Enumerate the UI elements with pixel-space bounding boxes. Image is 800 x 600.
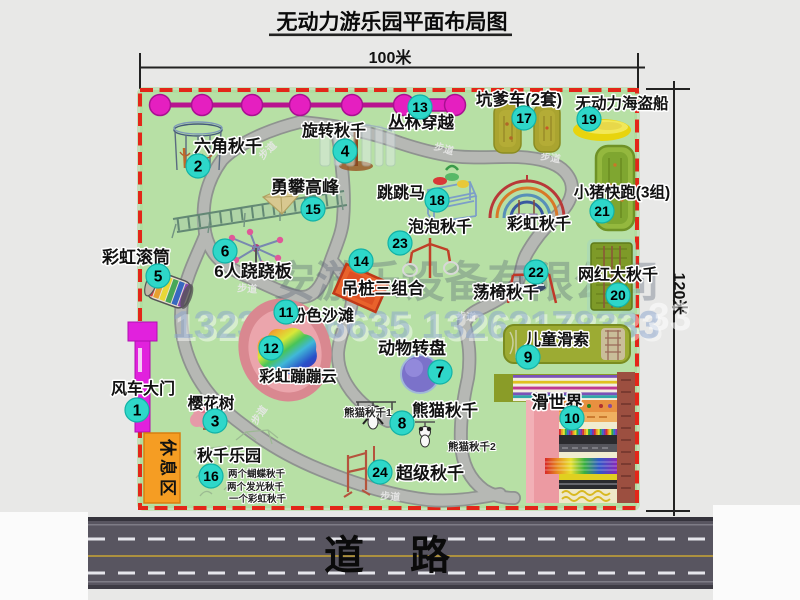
- svg-text:风车大门: 风车大门: [111, 379, 175, 398]
- svg-text:休息区: 休息区: [158, 438, 178, 499]
- svg-text:16: 16: [203, 468, 219, 484]
- svg-text:网红大秋千: 网红大秋千: [578, 265, 658, 284]
- svg-text:六角秋千: 六角秋千: [194, 136, 262, 156]
- svg-text:18: 18: [429, 192, 445, 208]
- svg-text:14: 14: [353, 253, 369, 269]
- svg-text:旋转秋千: 旋转秋千: [301, 121, 366, 140]
- svg-text:24: 24: [372, 464, 388, 480]
- svg-text:22: 22: [528, 264, 544, 280]
- svg-text:道路: 道路: [324, 534, 496, 578]
- svg-text:熊猫秋千1: 熊猫秋千1: [344, 406, 392, 419]
- svg-text:无动力游乐园平面布局图: 无动力游乐园平面布局图: [277, 10, 508, 34]
- svg-text:两个发光秋千: 两个发光秋千: [227, 481, 285, 493]
- svg-text:彩虹蹦蹦云: 彩虹蹦蹦云: [258, 367, 337, 386]
- svg-text:5: 5: [154, 269, 163, 286]
- svg-text:泡泡秋千: 泡泡秋千: [408, 217, 472, 236]
- svg-text:小猪快跑(3组): 小猪快跑(3组): [574, 183, 670, 202]
- svg-text:彩虹秋千: 彩虹秋千: [506, 214, 571, 233]
- svg-text:17: 17: [516, 110, 532, 126]
- svg-text:超级秋千: 超级秋千: [396, 463, 464, 483]
- svg-text:动物转盘: 动物转盘: [378, 338, 446, 358]
- svg-text:9: 9: [524, 350, 533, 367]
- svg-text:6人跷跷板: 6人跷跷板: [214, 261, 292, 281]
- svg-text:坑爹车(2套): 坑爹车(2套): [476, 89, 562, 109]
- svg-text:勇攀高峰: 勇攀高峰: [271, 177, 340, 197]
- svg-text:20: 20: [610, 287, 626, 303]
- svg-text:21: 21: [594, 203, 610, 219]
- svg-text:荡椅秋千: 荡椅秋千: [473, 282, 539, 302]
- svg-text:吊桩三组合: 吊桩三组合: [342, 278, 425, 298]
- svg-text:100米: 100米: [369, 48, 413, 67]
- svg-text:7: 7: [436, 365, 445, 382]
- svg-text:秋千乐园: 秋千乐园: [197, 446, 261, 465]
- svg-text:23: 23: [392, 235, 408, 251]
- svg-text:13: 13: [412, 99, 428, 115]
- svg-text:2: 2: [194, 159, 203, 176]
- svg-text:8: 8: [398, 416, 407, 433]
- svg-text:粉色沙滩: 粉色沙滩: [290, 306, 354, 325]
- svg-text:12: 12: [263, 340, 279, 356]
- svg-text:熊猫秋千: 熊猫秋千: [412, 400, 478, 420]
- svg-text:两个蝴蝶秋千: 两个蝴蝶秋千: [228, 468, 286, 480]
- svg-text:10: 10: [564, 410, 580, 426]
- svg-text:1: 1: [133, 403, 142, 420]
- svg-text:跳跳马: 跳跳马: [377, 183, 425, 202]
- svg-text:一个彩虹秋千: 一个彩虹秋千: [229, 493, 287, 505]
- svg-text:11: 11: [279, 304, 294, 320]
- svg-text:熊猫秋千2: 熊猫秋千2: [448, 440, 496, 453]
- svg-text:6: 6: [221, 244, 230, 261]
- svg-text:33: 33: [648, 296, 691, 339]
- svg-text:15: 15: [305, 201, 321, 217]
- svg-text:3: 3: [211, 414, 220, 431]
- svg-text:19: 19: [581, 111, 597, 127]
- svg-text:4: 4: [341, 144, 350, 161]
